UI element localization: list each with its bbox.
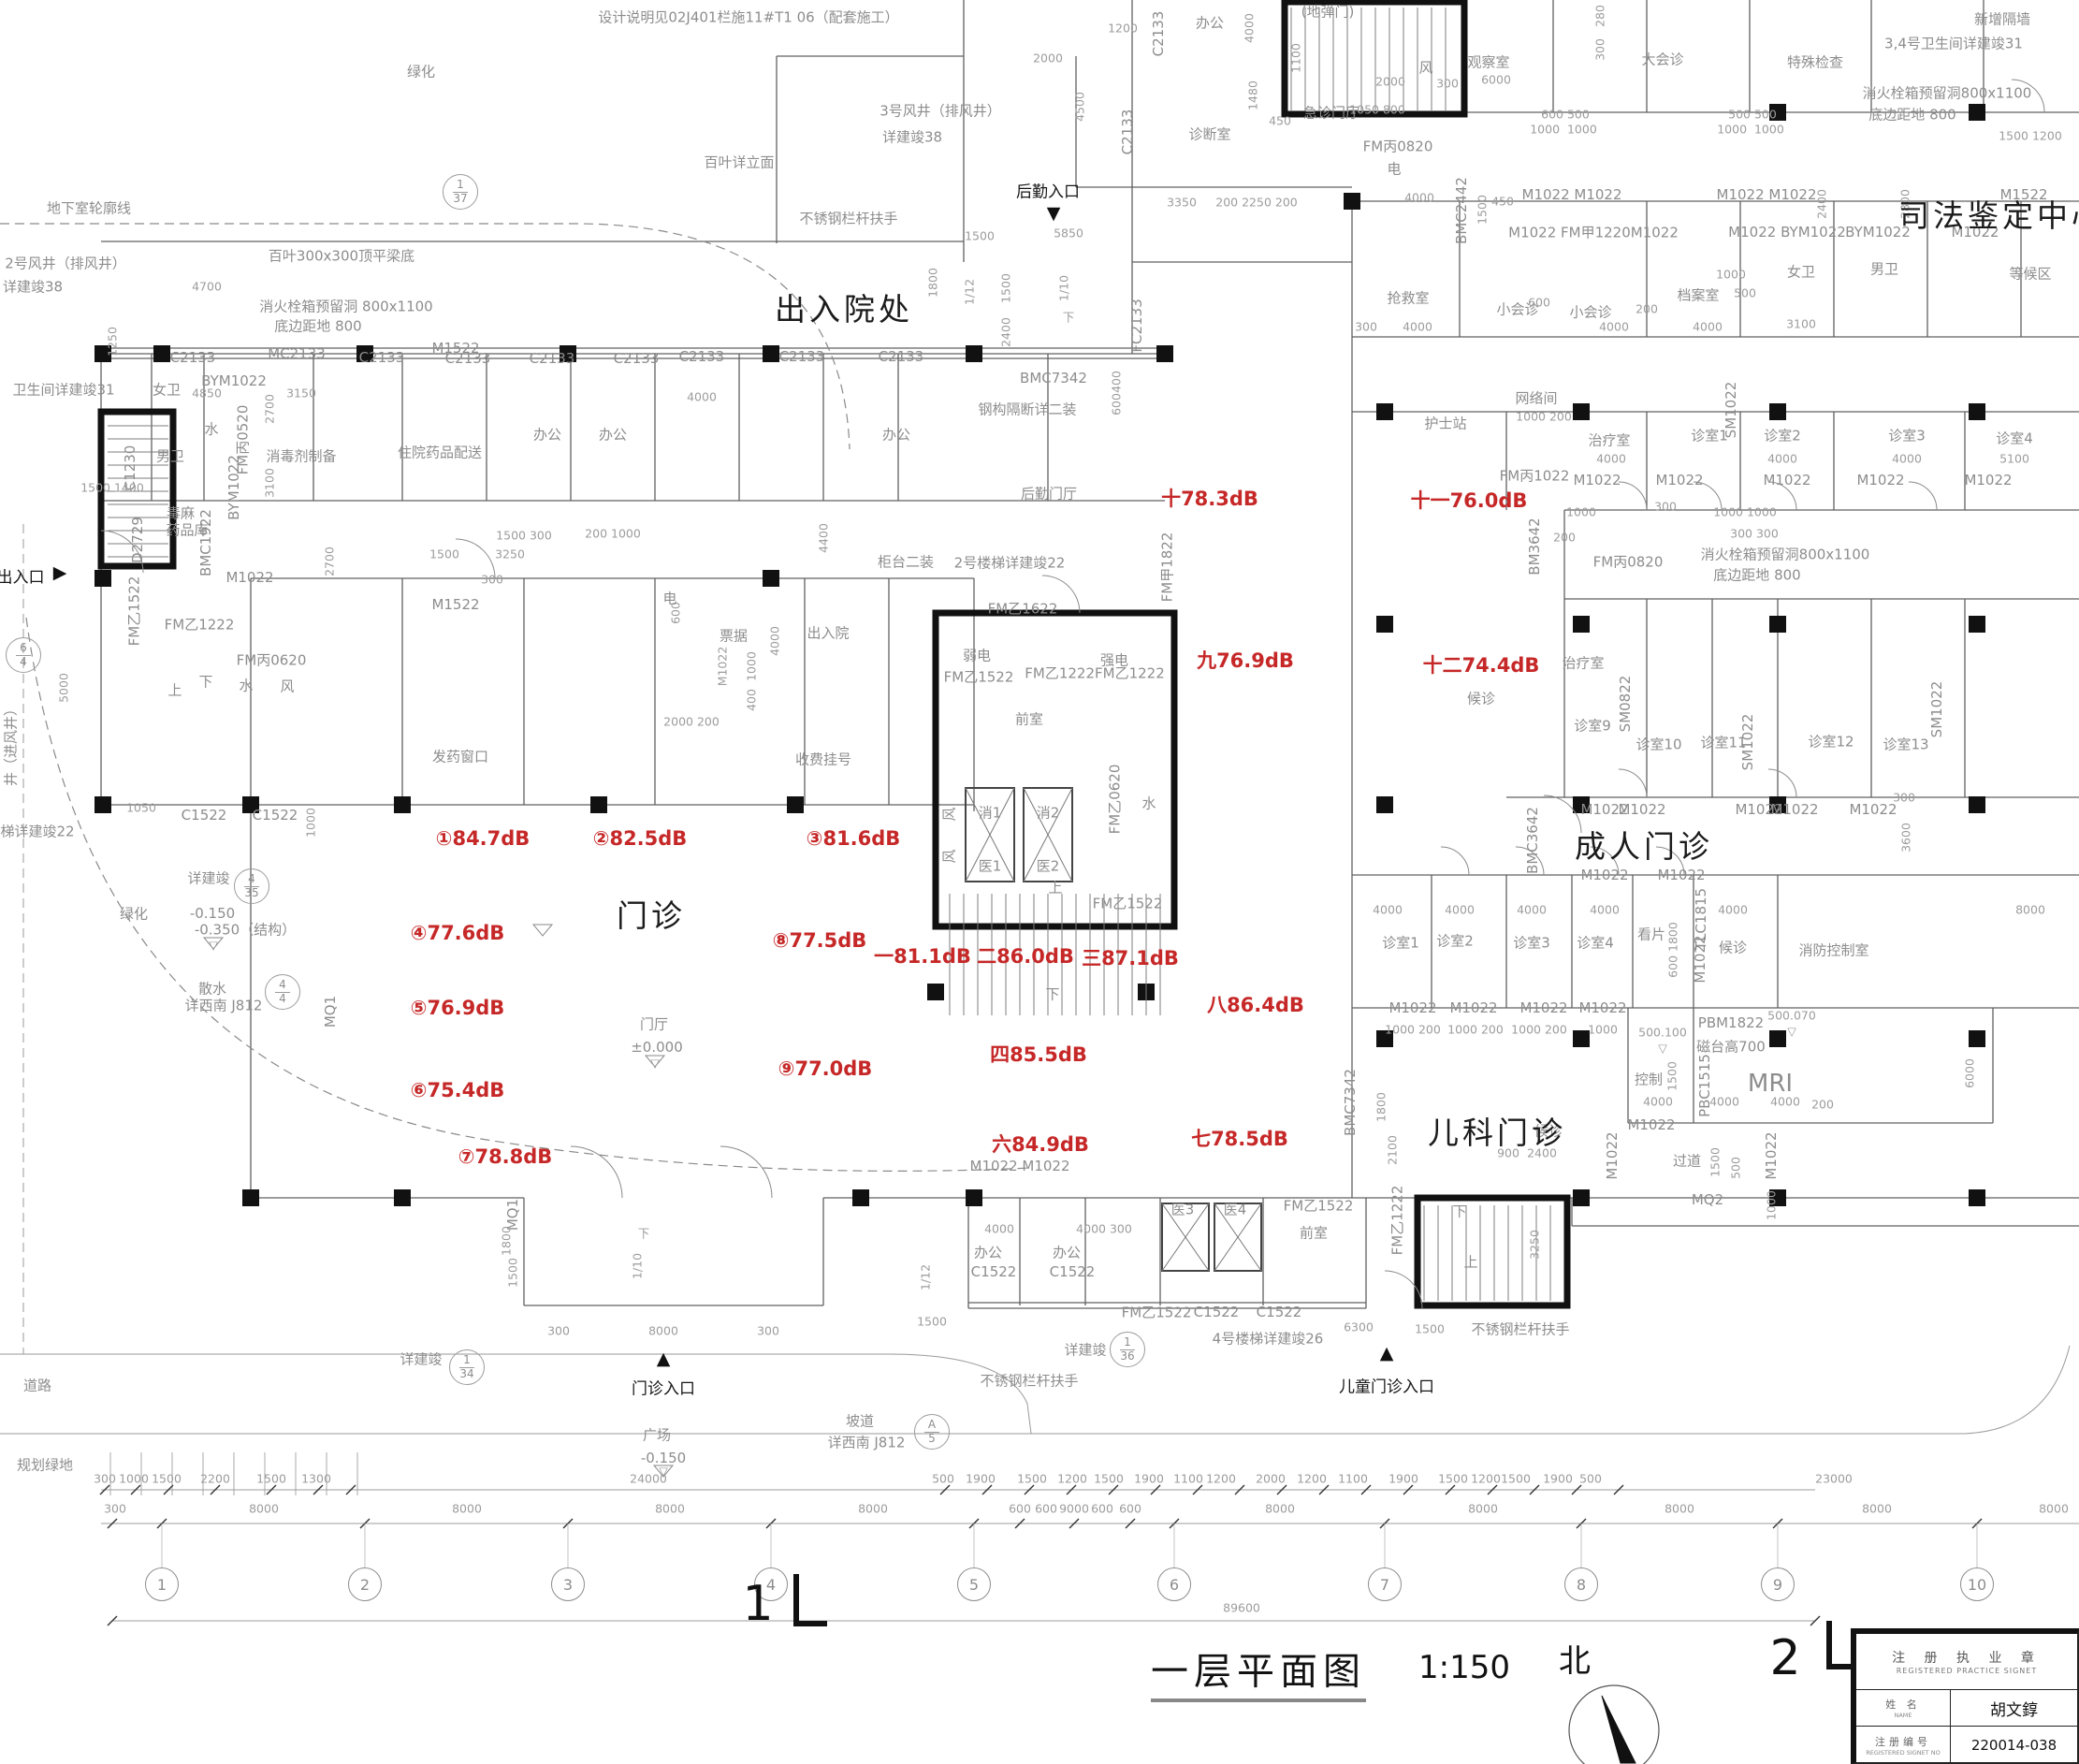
dimension-label: 1500 <box>256 1472 286 1486</box>
room-label: 不锈钢栏杆扶手 <box>1471 1319 1569 1339</box>
dimension-label: 1480 <box>1246 80 1260 110</box>
dimension-label: 1000 <box>1588 1023 1618 1037</box>
dimension-label: 4000 <box>984 1222 1014 1236</box>
noise-measurement: 九76.9dB <box>1197 646 1294 674</box>
room-label: FM丙1022 <box>1500 466 1570 486</box>
dimension-label: 1000 <box>745 651 759 681</box>
dimension-label: 2400 <box>1815 189 1829 219</box>
dimension-label: 1100 <box>1338 1472 1368 1486</box>
room-label: 水 <box>204 419 218 439</box>
room-label: C1522 <box>1050 1263 1096 1280</box>
dimension-label: ▽ <box>209 939 218 953</box>
room-label: 诊室10 <box>1636 735 1681 754</box>
dimension-label: 1200 <box>1206 1472 1236 1486</box>
dimension-label: 2100 <box>1386 1135 1400 1165</box>
room-label: MQ2 <box>1692 1191 1723 1208</box>
room-label: C2133 <box>170 349 216 366</box>
noise-measurement: 二86.0dB <box>977 941 1074 969</box>
dimension-label: 300 <box>757 1324 779 1338</box>
dimension-label: 下 <box>1063 308 1075 326</box>
dimension-label: 1900 <box>1388 1472 1418 1486</box>
room-label: MC2133 <box>268 345 326 362</box>
dimension-label: 1500 <box>429 547 459 561</box>
dimension-label: 1000 <box>1566 505 1596 519</box>
room-label: C2133 <box>779 348 825 365</box>
noise-measurement: 七78.5dB <box>1191 1124 1288 1152</box>
room-label: 详建竣38 <box>3 277 63 297</box>
dimension-label: 4400 <box>817 523 831 553</box>
room-label: 上 <box>1463 1252 1477 1272</box>
dimension-label: 1000 1000 <box>1713 505 1777 519</box>
dimension-label: 1000 <box>1716 268 1746 282</box>
dimension-label: 600 <box>1119 1502 1141 1516</box>
room-label: 诊室2 <box>1436 931 1474 951</box>
dimension-label: 3100 <box>1786 317 1816 331</box>
dimension-label: 2700 <box>263 394 277 424</box>
dimension-label: 1800 <box>500 1226 514 1256</box>
north-label: 北 <box>1559 1636 1591 1682</box>
room-label: M1022 <box>225 569 273 586</box>
dimension-label: 1900 <box>1543 1472 1573 1486</box>
dimension-label: M1022 <box>716 647 730 687</box>
room-label: M1022 <box>1763 1131 1780 1179</box>
room-label: 办公 <box>882 425 910 445</box>
grid-bubble-2: 2 <box>348 1567 382 1601</box>
dimension-label: 8000 <box>452 1502 482 1516</box>
title-block-signet-row: 注 册 执 业 章 REGISTERED PRACTICE SIGNET <box>1856 1634 2077 1690</box>
dimension-label: 1800 <box>1374 1092 1388 1122</box>
noise-measurement: ⑤76.9dB <box>411 997 505 1019</box>
dimension-label: 3600 <box>1899 823 1913 853</box>
dimension-label: 300 <box>104 1502 126 1516</box>
dimension-label: 1/10 <box>631 1253 645 1279</box>
room-label: C1522 <box>182 807 227 824</box>
entrance-arrow-icon: ▼ <box>1047 203 1061 224</box>
room-label: 办公 <box>1196 13 1224 33</box>
room-label: C2133 <box>445 350 491 367</box>
sheet-number: 5 <box>928 1433 936 1445</box>
detail-reference-bubble: 137 <box>443 174 478 210</box>
room-label: SM1022 <box>1928 681 1945 738</box>
room-label: 门厅 <box>640 1014 668 1034</box>
dimension-label: ▽ <box>1658 1042 1667 1056</box>
room-label: 档案室 <box>1677 285 1719 305</box>
room-label: SM1022 <box>1723 382 1739 439</box>
room-label: 2号楼梯详建竣22 <box>954 553 1066 573</box>
room-label: M1022 <box>1519 999 1567 1016</box>
name-label-en: NAME <box>1894 1712 1912 1719</box>
room-label: FM乙1522 <box>124 576 144 647</box>
noise-measurement: 三87.1dB <box>1082 943 1179 971</box>
room-label: 前室 <box>1015 709 1043 729</box>
dimension-label: 1500 <box>1415 1322 1445 1336</box>
sheet-number: 36 <box>1120 1350 1134 1363</box>
detail-number: 1 <box>453 179 468 192</box>
dimension-label: 9000 <box>1059 1502 1089 1516</box>
zone-label: 出入院处 <box>775 284 913 329</box>
room-label: 百叶300x300顶平梁底 <box>269 246 414 266</box>
room-label: 网络间 <box>1515 388 1557 408</box>
dimension-label: 1000 <box>1765 1190 1779 1220</box>
room-label: M1022 <box>1964 472 2012 488</box>
dimension-label: 2000 <box>1256 1472 1286 1486</box>
drawing-title: 一层平面图 <box>1151 1641 1366 1702</box>
room-label: 过道 <box>1673 1151 1701 1171</box>
room-label: 诊室3 <box>1513 933 1550 953</box>
room-label: 规划绿地 <box>17 1455 73 1475</box>
room-label: 底边距地 800 <box>1868 105 1955 124</box>
dimension-label: 2700 <box>323 547 337 576</box>
detail-reference-bubble: 44 <box>265 974 300 1010</box>
dimension-label: 2000 <box>1375 75 1405 89</box>
room-label: 不锈钢栏杆扶手 <box>799 209 897 228</box>
room-label: C2133 <box>1150 11 1167 57</box>
sheet-number: 37 <box>453 193 467 205</box>
sheet-number: 34 <box>459 1368 473 1380</box>
room-label: SM0822 <box>1617 676 1634 733</box>
dimension-label: 1200 <box>1471 1472 1501 1486</box>
entrance-arrow-icon: ▶ <box>53 562 67 583</box>
dimension-label: 4000 <box>1243 13 1257 43</box>
dimension-label: 3150 <box>286 386 316 401</box>
dimension-label: 1200 <box>1057 1472 1087 1486</box>
signet-no-label-cn: 注册编号 <box>1875 1734 1931 1749</box>
detail-reference-bubble: 134 <box>449 1349 485 1385</box>
room-label: 诊断室 <box>1188 124 1230 144</box>
dimension-label: 1500 <box>1017 1472 1047 1486</box>
dimension-label: 8000 <box>2039 1502 2069 1516</box>
room-label: FM乙0620 <box>1105 765 1125 835</box>
detail-number: 1 <box>1120 1336 1135 1349</box>
title-block: 注 册 执 业 章 REGISTERED PRACTICE SIGNET 姓 名… <box>1851 1628 2079 1764</box>
room-label: 消2 <box>1037 803 1060 823</box>
dimension-label: 200 1000 <box>585 527 641 541</box>
room-label: 详建竣 <box>187 868 229 888</box>
dimension-label: 600 <box>669 602 683 624</box>
room-label: 候诊 <box>1467 689 1495 708</box>
grid-bubble-6: 6 <box>1157 1567 1191 1601</box>
dimension-label: 5000 <box>57 673 71 703</box>
dimension-label: 1500 <box>1438 1472 1468 1486</box>
dimension-label: 1500 <box>506 1258 520 1288</box>
room-label: 男卫 <box>156 446 184 466</box>
room-label: M1022 M1022 <box>970 1158 1070 1174</box>
room-label: 风 <box>939 849 959 863</box>
dimension-label: 1250 <box>106 327 120 357</box>
room-label: BMC7342 <box>1342 1069 1359 1136</box>
dimension-label: 5100 <box>1999 452 2029 466</box>
room-label: 办公 <box>533 425 561 445</box>
room-label: BYM1022 <box>225 455 242 520</box>
dimension-label: 1500 <box>1094 1472 1124 1486</box>
sheet-number: 35 <box>244 887 258 899</box>
dimension-label: 1900 <box>1134 1472 1164 1486</box>
dimension-label: 1000 <box>119 1472 149 1486</box>
room-label: 医4 <box>1224 1200 1247 1219</box>
noise-measurement: 六84.9dB <box>992 1130 1089 1158</box>
dimension-label: 1500 <box>999 273 1013 303</box>
room-label: M1522 <box>431 596 479 613</box>
grid-bubble-7: 7 <box>1368 1567 1402 1601</box>
room-label: 2号风井（排风井） <box>5 254 126 273</box>
detail-number: A <box>924 1419 939 1432</box>
room-label: 电 <box>1387 159 1401 179</box>
room-label: MRI <box>1748 1070 1793 1098</box>
noise-measurement: 十二74.4dB <box>1423 650 1540 678</box>
signet-label-cn: 注 册 执 业 章 <box>1892 1648 2042 1667</box>
dimension-label: 600 <box>1110 393 1124 415</box>
room-label: C1522 <box>1257 1304 1302 1320</box>
dimension-label: 4000 <box>1767 452 1797 466</box>
dimension-label: 3250 <box>1528 1230 1542 1260</box>
room-label: C1522 <box>1194 1304 1240 1320</box>
room-label: 诊室1 <box>1382 933 1419 953</box>
noise-measurement: ⑦78.8dB <box>458 1145 553 1168</box>
room-label: 护士站 <box>1424 414 1466 433</box>
dimension-label: 4700 <box>192 280 222 294</box>
room-label: 下 <box>1045 984 1059 1004</box>
zone-label: 司法鉴定中心 <box>1898 191 2079 236</box>
room-label: M1022 <box>1388 999 1436 1016</box>
room-label: 诊室9 <box>1574 716 1611 736</box>
room-label: 详西南 J812 <box>828 1433 906 1452</box>
room-label: 3号风井（排风井） <box>880 101 1001 121</box>
dimension-label: 1000 1000 <box>1530 123 1597 137</box>
room-label: M1022 <box>1770 801 1818 818</box>
room-label: 道路 <box>23 1376 51 1395</box>
dimension-label: 4000 <box>1404 191 1434 205</box>
room-label: M1022 <box>1578 999 1626 1016</box>
room-label: 收费挂号 <box>795 750 851 769</box>
dimension-label: 3250 <box>495 547 525 561</box>
name-label-cn: 姓 名 <box>1885 1697 1921 1712</box>
total-dimension: 89600 <box>1223 1601 1260 1615</box>
noise-measurement: 八86.4dB <box>1207 990 1304 1018</box>
dimension-label: 6000 <box>1963 1058 1977 1088</box>
room-label: M1022 <box>1692 935 1708 983</box>
dimension-label: 300 <box>481 573 503 587</box>
dimension-label: 3100 <box>263 468 277 498</box>
detail-reference-bubble: 136 <box>1110 1332 1145 1367</box>
dimension-label: 4000 <box>1718 903 1748 917</box>
dimension-label: 3350 <box>1167 196 1197 210</box>
dimension-label: 280 <box>1593 5 1607 27</box>
dimension-label: 500 <box>1579 1472 1602 1486</box>
room-label: 广场 <box>643 1425 671 1445</box>
dimension-label: ▽ <box>1787 1025 1796 1039</box>
dimension-label: 8000 <box>858 1502 888 1516</box>
drawing-scale: 1:150 <box>1418 1649 1510 1686</box>
room-label: 诊室2 <box>1764 426 1801 445</box>
section-marker-2: 2 <box>1769 1630 1800 1686</box>
dimension-label: 23000 <box>1815 1472 1853 1486</box>
room-label: 梯详建竣22 <box>0 822 74 841</box>
room-label: FM乙1522 <box>1122 1303 1192 1322</box>
room-label: 百叶详立面 <box>704 153 774 172</box>
dimension-label: 1050 <box>126 801 156 815</box>
dimension-label: 300 <box>1436 77 1459 91</box>
dimension-label: 1/12 <box>963 279 977 305</box>
dimension-label: 4000 300 <box>1076 1222 1132 1236</box>
room-label: 诊室3 <box>1888 426 1926 445</box>
dimension-label: 1800 <box>926 268 940 298</box>
zone-label: 成人门诊 <box>1575 822 1713 867</box>
room-label: ±0.000 <box>631 1039 683 1056</box>
dimension-label: 1500 300 <box>496 529 552 543</box>
dimension-label: 8000 <box>2015 903 2045 917</box>
room-label: M1022 <box>1657 867 1705 883</box>
room-label: 观察室 <box>1467 52 1509 72</box>
dimension-label: 1000 200 <box>1385 1023 1441 1037</box>
room-label: BMC7342 <box>1020 370 1087 386</box>
noise-measurement: ④77.6dB <box>411 922 505 944</box>
dimension-label: 8000 <box>1665 1502 1694 1516</box>
room-label: M1022 M1022 <box>1717 186 1817 203</box>
dimension-label: 4000 <box>1599 320 1629 334</box>
dimension-label: 400 <box>1110 371 1124 393</box>
dimension-label: 1000 <box>304 808 318 838</box>
room-label: 控制 <box>1635 1070 1663 1089</box>
dimension-label: 4500 <box>1073 92 1087 122</box>
room-label: -0.350（结构） <box>195 920 296 940</box>
title-block-no-row: 注册编号 REGISTERED SIGNET NO 220014-038 <box>1856 1727 2077 1763</box>
dimension-label: 4850 <box>192 386 222 401</box>
room-label: 不锈钢栏杆扶手 <box>980 1371 1078 1391</box>
dimension-label: 300 <box>94 1472 116 1486</box>
dimension-label: 500 <box>1734 286 1756 300</box>
room-label: 详建竣 <box>1064 1340 1106 1360</box>
room-label: C1522 <box>971 1263 1017 1280</box>
noise-measurement: ⑨77.0dB <box>778 1057 873 1080</box>
room-label: 4号楼梯详建竣26 <box>1213 1329 1324 1349</box>
room-label: FM乙1222 <box>1388 1186 1407 1256</box>
title-block-name-row: 姓 名 NAME 胡文錞 <box>1856 1690 2077 1727</box>
room-label: 女卫 <box>153 380 181 400</box>
room-label: M1022 <box>1627 1116 1675 1133</box>
signet-label-en: REGISTERED PRACTICE SIGNET <box>1897 1667 2037 1675</box>
detail-reference-bubble: A5 <box>914 1414 950 1450</box>
room-label: 消防控制室 <box>1798 940 1868 960</box>
dimension-label: 8000 <box>1265 1502 1295 1516</box>
room-label: BMC2442 <box>1453 177 1470 244</box>
room-label: 男卫 <box>1870 259 1898 279</box>
room-label: 详建竣38 <box>882 127 942 147</box>
dimension-label: 300 300 <box>1730 527 1779 541</box>
dimension-label: 400 <box>745 689 759 711</box>
dimension-label: 600 1800 <box>1666 922 1680 978</box>
sheet-number: 4 <box>20 656 27 668</box>
grid-bubble-8: 8 <box>1564 1567 1598 1601</box>
dimension-label: 8000 <box>655 1502 685 1516</box>
dimension-label: 8000 <box>249 1502 279 1516</box>
dimension-label: 600 <box>1091 1502 1113 1516</box>
room-label: M1022 <box>1849 801 1897 818</box>
dimension-label: 200 <box>1553 531 1576 545</box>
room-label: 底边距地 800 <box>274 316 361 336</box>
dimension-label: 4000 <box>1596 452 1626 466</box>
room-label: 医1 <box>979 856 1002 876</box>
room-label: 大会诊 <box>1641 50 1683 69</box>
room-label: C2133 <box>1119 109 1136 155</box>
dimension-label: 1500 <box>1708 1147 1723 1177</box>
room-label: FC2133 <box>1128 299 1145 352</box>
dimension-label: 450 <box>1491 195 1514 209</box>
room-label: 医3 <box>1171 1200 1195 1219</box>
dimension-label: 4000 <box>1445 903 1475 917</box>
room-label: C2133 <box>530 350 575 367</box>
dimension-label: 2200 <box>200 1472 230 1486</box>
name-value: 胡文錞 <box>1951 1697 2077 1720</box>
room-label: M1022 <box>1604 1131 1621 1179</box>
room-label: C2133 <box>879 348 924 365</box>
dimension-label: 300 <box>1593 38 1607 61</box>
section-marker-1: 1 <box>742 1576 773 1632</box>
room-label: 柜台二装 <box>878 552 934 572</box>
room-label: 小会诊 <box>1569 302 1611 322</box>
dimension-label: 6300 <box>1344 1320 1374 1334</box>
room-label: 下 <box>1452 1202 1466 1221</box>
detail-number: 4 <box>244 873 259 886</box>
room-label: 等候区 <box>2009 264 2051 284</box>
room-label: 治疗室 <box>1562 653 1604 673</box>
room-label: 住院药品配送 <box>398 443 482 462</box>
zone-label: 儿科门诊 <box>1428 1108 1566 1153</box>
room-label: 风 <box>280 677 294 696</box>
zone-label: 门诊 <box>617 891 686 936</box>
noise-measurement: ①84.7dB <box>436 827 531 850</box>
grid-bubble-3: 3 <box>551 1567 585 1601</box>
dimension-label: 500 500 <box>1728 108 1777 122</box>
dimension-label: 8000 <box>648 1324 678 1338</box>
dimension-label: 4000 <box>1892 452 1922 466</box>
room-label: 出入院 <box>807 623 849 643</box>
room-label: D2729 <box>129 517 146 563</box>
room-label: M1022 <box>1573 472 1621 488</box>
entrance-label: 门诊入口 <box>632 1376 695 1399</box>
detail-number: 4 <box>275 979 290 992</box>
dimension-label: 1500 <box>152 1472 182 1486</box>
noise-measurement: ③81.6dB <box>807 827 901 850</box>
grid-bubble-1: 1 <box>145 1567 179 1601</box>
noise-measurement: 四85.5dB <box>990 1040 1087 1068</box>
dimension-label: 300 <box>547 1324 570 1338</box>
dimension-label: 1000 200 <box>1511 1023 1567 1037</box>
room-label: 消毒剂制备 <box>266 446 336 466</box>
dimension-label: 4000 <box>1709 1095 1739 1109</box>
room-label: M1022 FM甲1220M1022 <box>1508 223 1679 242</box>
room-label: C2133 <box>614 350 660 367</box>
dimension-label: 8000 <box>1862 1502 1892 1516</box>
room-label: 治疗室 <box>1588 430 1630 450</box>
dimension-label: 4000 <box>1590 903 1620 917</box>
grid-bubble-10: 10 <box>1960 1567 1994 1601</box>
room-label: 井（进风井） <box>1 702 21 786</box>
room-label: 坡道 <box>846 1411 874 1431</box>
dimension-label: 1500 <box>1501 1472 1531 1486</box>
signet-no-label-en: REGISTERED SIGNET NO <box>1866 1749 1941 1757</box>
room-label: M1022 <box>1618 801 1665 818</box>
room-label: 水 <box>1141 794 1156 813</box>
dimension-label: 200 <box>1636 302 1658 316</box>
detail-reference-bubble: 435 <box>234 868 269 904</box>
room-label: FM甲1822 <box>1157 532 1177 603</box>
room-label: M1022 M1022 <box>1522 186 1622 203</box>
room-label: FM乙1522 <box>1284 1196 1354 1216</box>
room-label: (地弹门) <box>1301 2 1355 22</box>
room-label: FM丙0820 <box>1363 137 1433 156</box>
room-label: SM1022 <box>1739 714 1756 771</box>
room-label: PBM1822 <box>1698 1014 1764 1031</box>
